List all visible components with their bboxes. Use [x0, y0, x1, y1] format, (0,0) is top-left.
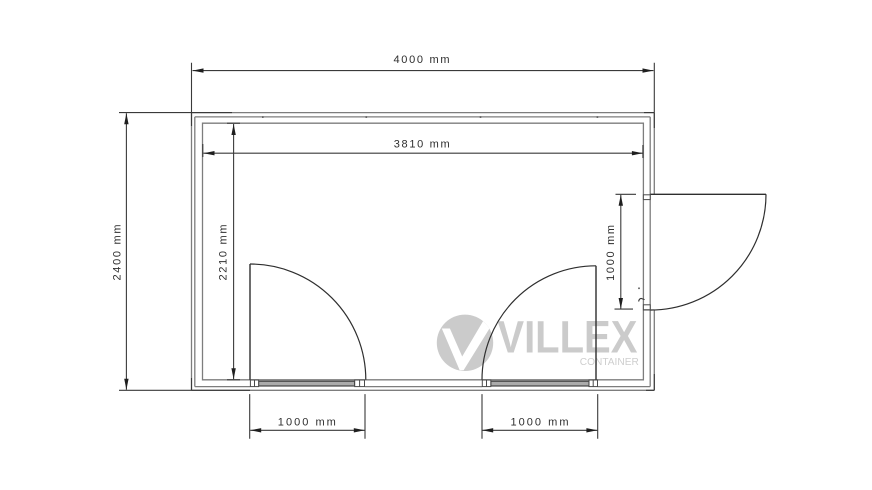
svg-text:3810 mm: 3810 mm	[394, 139, 450, 151]
svg-text:1000 mm: 1000 mm	[278, 416, 336, 428]
svg-text:1000 mm: 1000 mm	[511, 416, 569, 428]
svg-text:4000 mm: 4000 mm	[394, 54, 450, 66]
svg-text:2210 mm: 2210 mm	[218, 225, 230, 281]
svg-text:VILLEX: VILLEX	[497, 311, 637, 362]
svg-text:CONTAINER: CONTAINER	[580, 357, 639, 368]
svg-text:2400 mm: 2400 mm	[111, 225, 123, 281]
svg-text:1000 mm: 1000 mm	[605, 225, 617, 281]
